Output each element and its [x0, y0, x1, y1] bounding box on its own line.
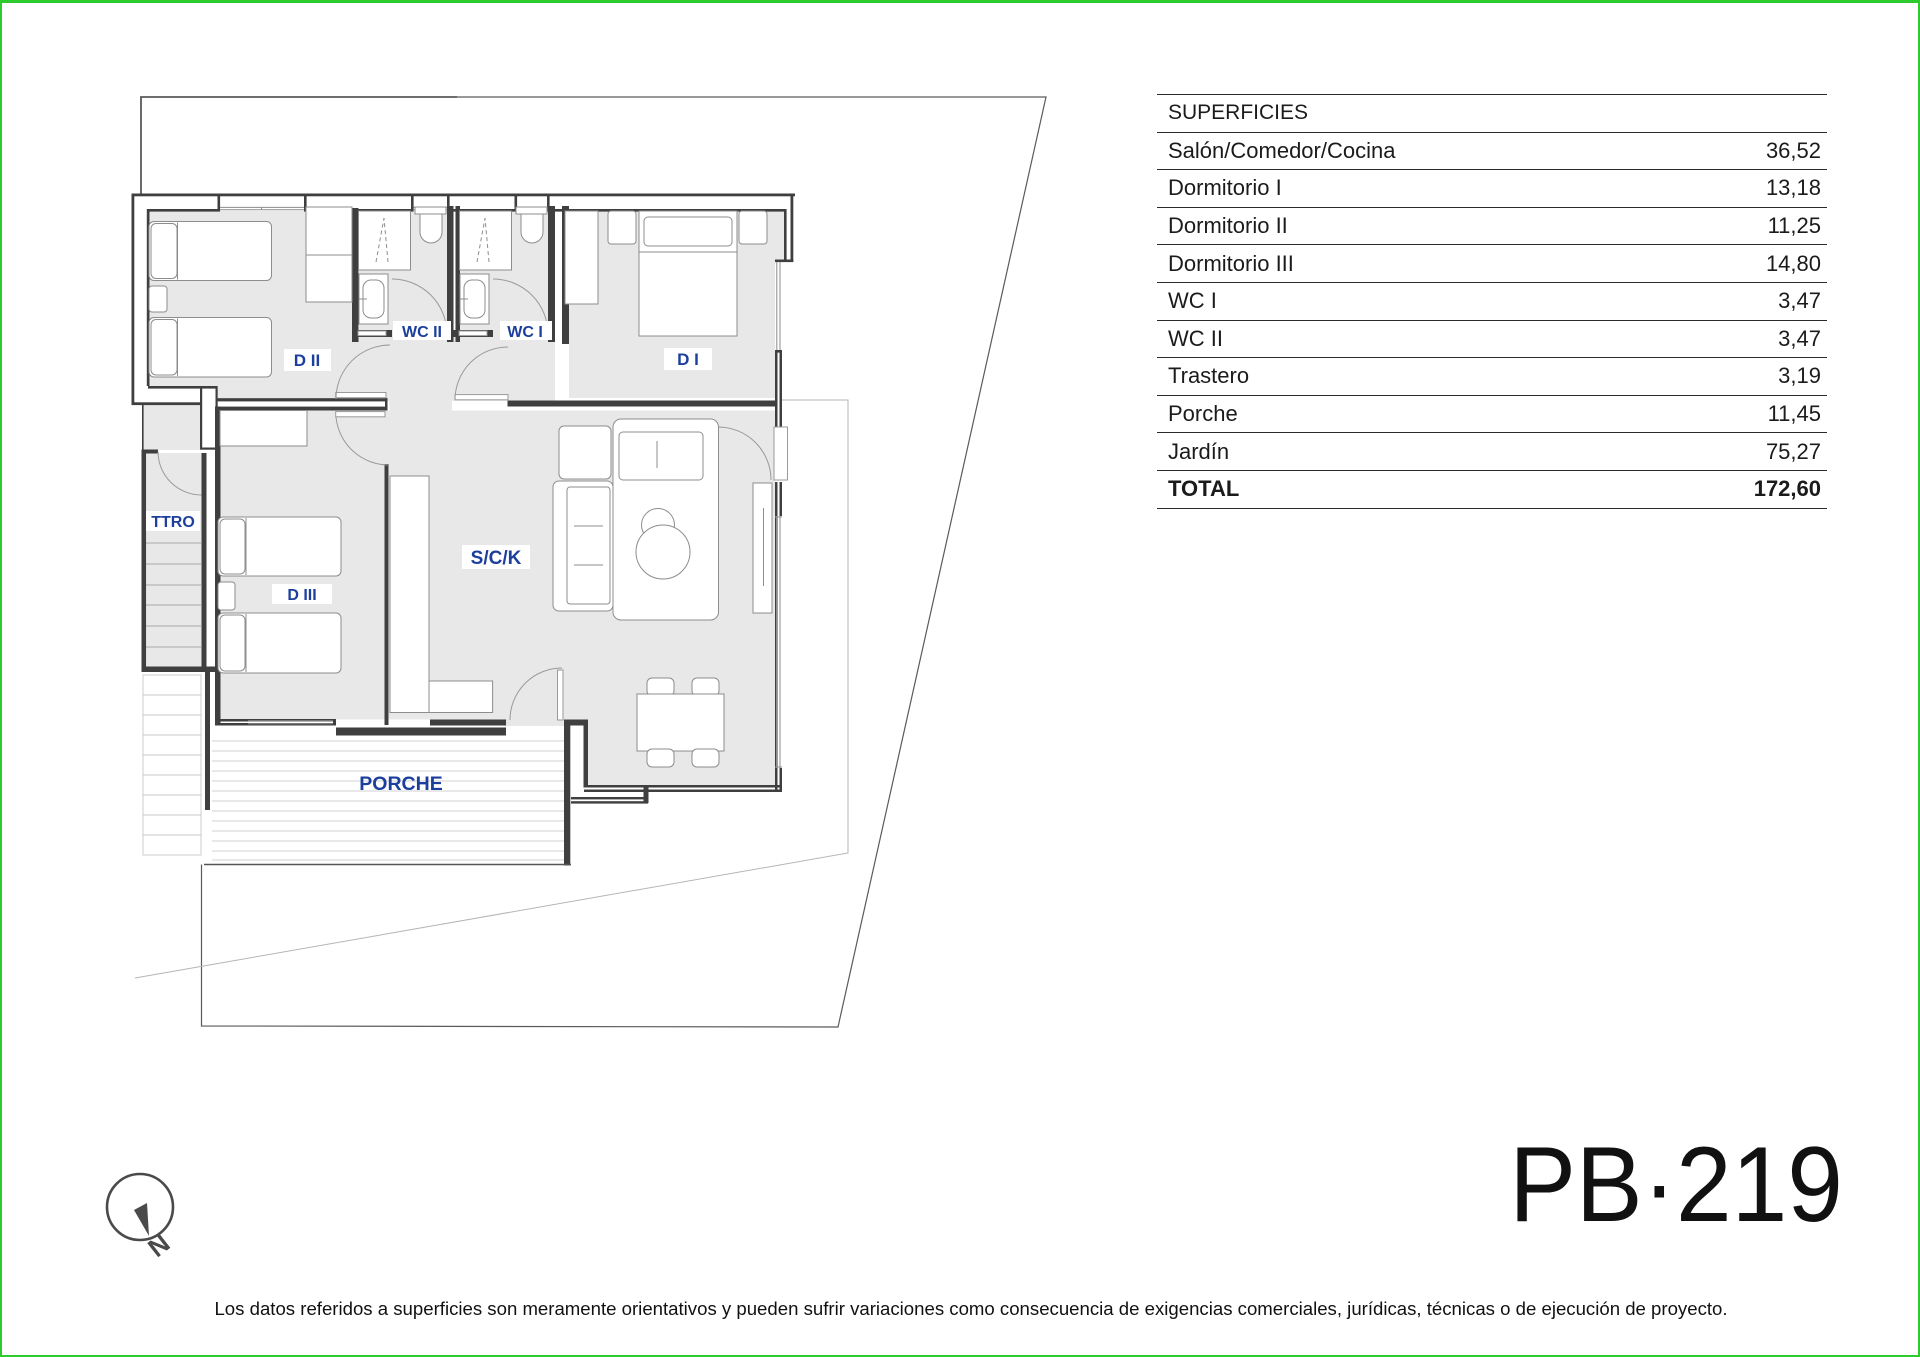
svg-text:PORCHE: PORCHE	[359, 773, 442, 795]
svg-text:D III: D III	[287, 587, 316, 604]
svg-text:D II: D II	[294, 351, 320, 370]
svg-text:S/C/K: S/C/K	[471, 548, 522, 569]
svg-text:D I: D I	[677, 350, 699, 369]
svg-text:TTRO: TTRO	[151, 514, 195, 531]
svg-text:WC I: WC I	[507, 324, 543, 341]
svg-text:N: N	[142, 1228, 175, 1263]
svg-text:WC II: WC II	[402, 324, 442, 341]
